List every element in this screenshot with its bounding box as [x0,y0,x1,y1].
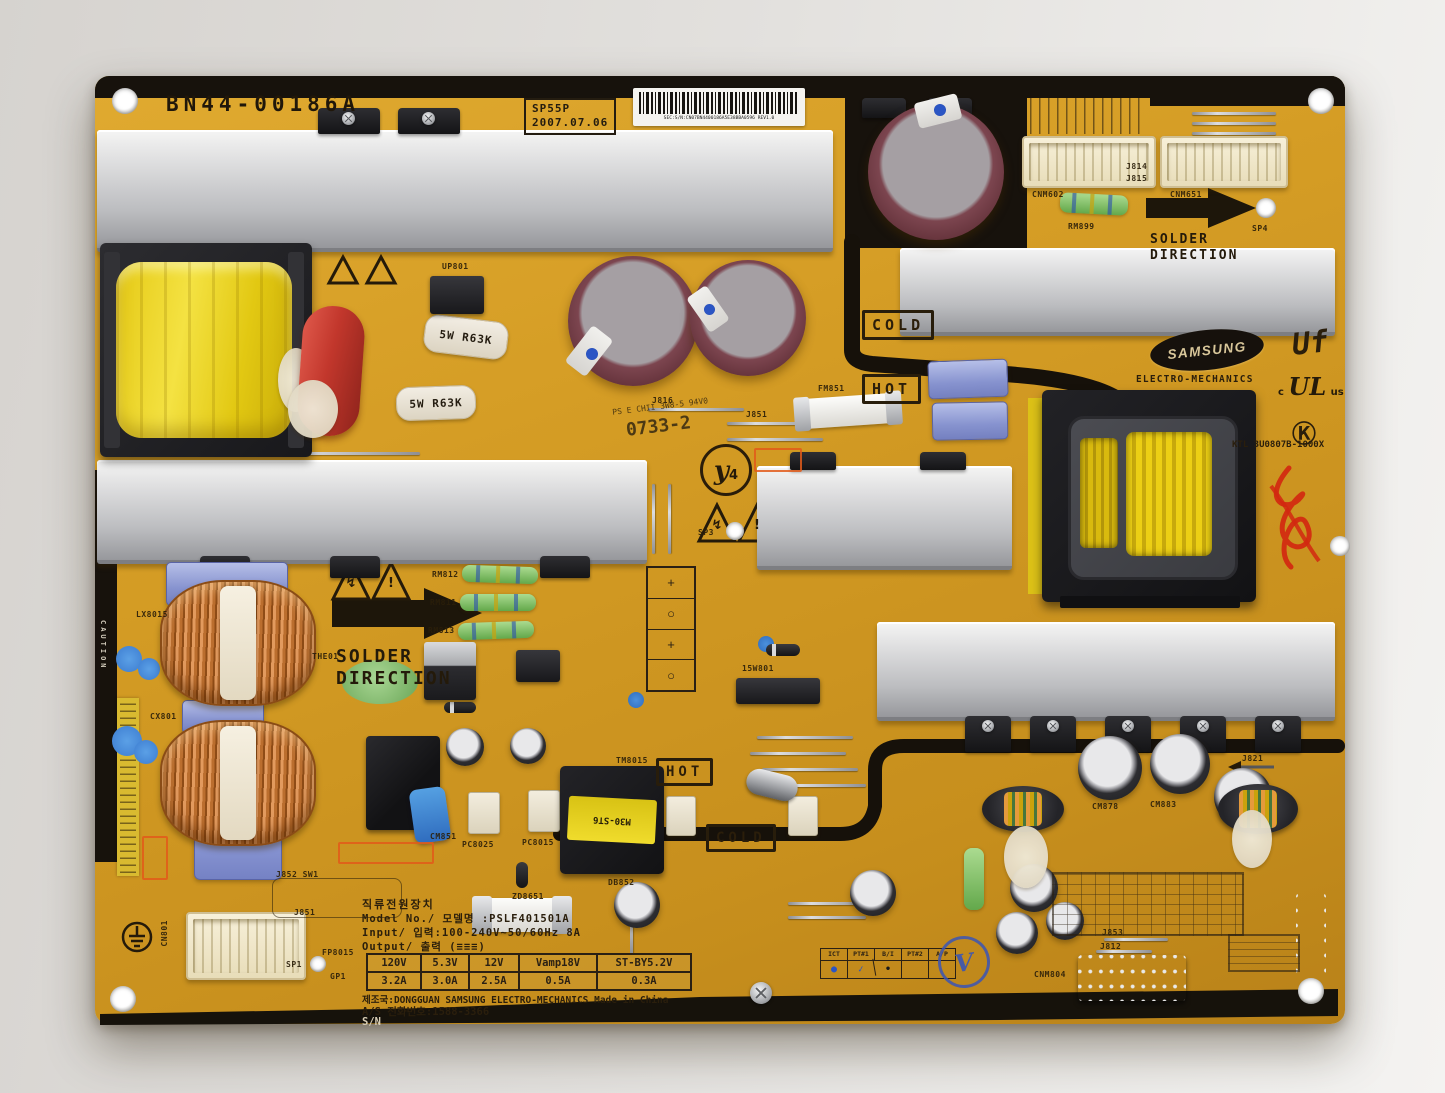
heatsink-mid-left [97,460,647,564]
solder-direction-right: SOLDER DIRECTION [1150,232,1238,263]
date-stamp-box: SP55P 2007.07.06 [524,98,616,135]
ref-cx801: CX801 [150,712,177,721]
electrolytic-capacitor-cm878 [1078,736,1142,800]
ref-cm878: CM878 [1092,802,1119,811]
spec-header: 5.3V [422,955,470,971]
mounting-hole-sp1 [310,956,326,972]
jumper-wire [757,736,853,739]
ref-sp4: SP4 [1252,224,1268,233]
ul-core: UL [1288,372,1326,401]
ref-cn801: CN801 [160,920,169,947]
qc-v-stamp-letter: V [953,946,975,977]
warning-bolt-glyph: ↯ [341,576,361,591]
qc-stamp: ✓ [847,959,877,980]
barcode-text: SEC:S/N:CN07BN4400186A5E38BBA0596 REV1.0 [633,116,805,121]
warning-excl-glyph: ! [381,576,401,591]
glue-blob [288,380,338,438]
ul-us: us [1331,387,1344,398]
transformer-pins [1060,596,1240,608]
glue-blob [1004,826,1048,888]
ref-cm851: CM851 [430,832,457,841]
electrolytic-capacitor [510,728,546,764]
electrolytic-capacitor [850,870,896,916]
jumper-wire [788,916,866,919]
orange-outline [754,448,802,472]
spec-value: 0.5A [520,973,598,989]
stamp-line2: 2007.07.06 [532,116,608,130]
ref-j853: J853 [1102,928,1123,937]
transistor-tab [330,556,380,578]
connector-cnm651 [1160,136,1288,188]
power-resistor-green [1060,192,1129,216]
qc-header: B/I [875,949,902,960]
electrolytic-capacitor [446,728,484,766]
spec-value: 3.0A [422,973,470,989]
mounting-hole [110,986,136,1012]
ref-j812: J812 [1100,942,1121,951]
heatsink-mid-center [757,466,1012,570]
spec-header-row: 120V 5.3V 12V Vamp18V ST-BY5.2V [368,955,690,971]
film-capacitor [932,401,1009,440]
tape-ridges [116,262,292,438]
heatsink-top-right [900,248,1335,336]
spec-serial-line: S/N [362,1016,381,1028]
toroid-choke [160,580,316,706]
spec-header: Vamp18V [520,955,598,971]
spec-value: 0.3A [598,973,690,989]
ref-j814: J814 [1126,162,1147,171]
samsung-logo-text: SAMSUNG [1167,338,1248,361]
ref-cm883: CM883 [1150,800,1177,809]
ref-cnm804: CNM804 [1034,970,1066,979]
transistor-tab [540,556,590,578]
solder-word1: SOLDER [1150,232,1238,248]
aux-mark: + [648,568,694,599]
transistor-screw [1047,720,1059,732]
part-number: BN44-00186A [166,92,360,116]
cold-label-top: COLD [862,310,934,340]
electrolytic-capacitor [614,882,660,928]
ref-j816: J816 [652,396,673,405]
stamp-line1: SP55P [532,102,608,116]
optocoupler [666,796,696,836]
output-toroid [982,786,1064,832]
orange-outline [142,836,168,880]
qc-header-row: ICT PT#1 B/I PT#2 A/P [821,949,955,960]
connector-5pin [1296,893,1326,978]
transistor-screw [1197,720,1209,732]
mounting-hole [1298,978,1324,1004]
optocoupler-pc8015 [528,790,560,832]
diode [444,702,476,713]
qc-header: ICT [821,949,848,960]
qc-stamp-row: ● ✓ • [821,960,955,978]
ref-rm899: RM899 [1068,222,1095,231]
ref-fp8015: FP8015 [322,948,354,957]
connector-pin-labels [1030,98,1142,134]
heatsink-top-left [97,130,833,252]
barcode-bars [639,92,799,114]
transistor-screw [982,720,994,732]
cap-blue-dot [586,348,598,360]
mounting-hole-sp3 [726,522,744,540]
jumper-wire-vertical [652,484,655,554]
power-resistor-green [460,594,536,611]
ref-j851-bottom: J851 [294,908,315,917]
y-mark: y [714,449,729,493]
ref-rm811: RM811 [430,598,457,607]
ref-cnm651: CNM651 [1170,190,1202,199]
jumper-wire [762,768,858,771]
ref-j851-top: J851 [746,410,767,419]
hot-label-top: HOT [862,374,921,404]
disc-capacitor [138,658,160,680]
heatsink-bottom-right [877,622,1335,721]
ref-rm813: RM813 [428,626,455,635]
aux-silk-table: + ○ + ○ [646,566,696,692]
qc-stamp: ● [821,961,848,978]
aux-mark: ○ [648,660,694,690]
toroid-choke [160,720,316,846]
ref-j821: J821 [1242,754,1263,763]
transformer-yellow-tape-coil [116,262,292,438]
spec-value-row: 3.2A 3.0A 2.5A 0.5A 0.3A [368,971,690,989]
transformer-yellow-label: M30-ST6 [567,796,657,845]
ref-up801: UP801 [442,262,469,271]
ceramic-resistor: 5W R63K [395,385,476,422]
mounting-screw [750,982,772,1004]
jumper-wire [727,438,823,441]
ul-mark: c UL us [1278,372,1344,401]
mounting-hole [112,88,138,114]
spec-header: 12V [470,955,520,971]
ktl-line: KTL 3U0807B-1000X [1232,440,1324,450]
spec-value: 2.5A [470,973,520,989]
standby-transformer-tm8015: M30-ST6 [560,766,664,874]
spec-header: ST-BY5.2V [598,955,690,971]
hot-label-bottom: HOT [656,758,713,786]
photo-scene: CAUTION [0,0,1445,1093]
mounting-hole [1308,88,1334,114]
mounting-hole [1330,536,1350,556]
ic-dip-15w801 [736,678,820,704]
connector-cnm804-header [1078,955,1186,1001]
film-capacitor [927,359,1008,400]
disc-capacitor [134,740,158,764]
jumper-wire-vertical [668,484,671,554]
ceramic-resistor-label: 5W R63K [409,396,463,411]
ic-up801 [430,276,484,314]
division-text: ELECTRO-MECHANICS [1136,374,1254,385]
cap-blue-dot [934,104,946,116]
solder-word2: DIRECTION [1150,248,1238,264]
ref-fm851: FM851 [818,384,845,393]
pinout-silk-table [1052,872,1244,936]
disc-capacitor [628,692,644,708]
qc-stamp [902,961,929,978]
ref-tm8015: TM8015 [616,756,648,765]
electrolytic-capacitor [996,912,1038,954]
y-mark-sub: 4 [729,447,738,505]
optocoupler [788,796,818,836]
lf-mark: Uf [1290,324,1330,363]
jumper-wire [1192,112,1276,115]
qc-stamp: • [875,961,902,978]
transistor-screw [1122,720,1134,732]
y4-safety-mark: y 4 [700,444,752,496]
warning-excl-glyph: ! [747,518,767,533]
spec-header: 120V [368,955,422,971]
orange-outline [338,842,434,864]
ref-cnm602: CNM602 [1032,190,1064,199]
cold-label-bottom: COLD [706,824,776,852]
qc-stamp-table: ICT PT#1 B/I PT#2 A/P ● ✓ • [820,948,956,979]
spec-title-kr: 직류전원장치 [362,896,435,912]
ref-pc8025: PC8025 [462,840,494,849]
solder-word2: DIRECTION [336,668,452,690]
ceramic-resistor-label: 5W R63K [439,327,494,346]
ref-j852-sw1: J852 SW1 [276,870,319,879]
barcode-sticker: SEC:S/N:CN07BN4400186A5E38BBA0596 REV1.0 [633,88,805,126]
mounting-hole-sp4 [1256,198,1276,218]
solder-direction-left: SOLDER DIRECTION [336,646,452,689]
ul-c: c [1278,387,1284,398]
cap-blue-dot [704,304,715,315]
aux-mark: + [648,630,694,661]
spec-model-line: Model No./ 모델명 :PSLF401501A [362,911,570,926]
qc-header: PT#2 [902,949,929,960]
label-silk-table [1228,934,1300,972]
diode [766,644,800,656]
transformer-winding-window [1126,432,1212,556]
electrolytic-capacitor-cm883 [1150,734,1210,794]
power-resistor-green [458,621,535,641]
transistor-screw [422,112,435,125]
jumper-wire [1192,122,1276,125]
jumper-wire [1104,938,1168,941]
power-resistor-green-vertical [964,848,984,910]
jumper-wire [750,752,846,755]
spec-value: 3.2A [368,973,422,989]
ref-the01: THE01 [312,652,339,661]
spec-service-line: A/S 전화번호:1588-3366 [362,1004,489,1019]
ref-gp1: GP1 [330,972,346,981]
glue-blob [1232,810,1272,868]
spec-output-line: Output/ 출력 (≡≡≡) [362,939,486,954]
solder-word1: SOLDER [336,646,452,668]
transistor-screw [1272,720,1284,732]
power-resistor-green [462,565,539,585]
spec-input-line: Input/ 입력:100-240V~50/60Hz 8A [362,925,581,940]
optocoupler-pc8025 [468,792,500,834]
ref-db852: DB852 [608,878,635,887]
ref-j815: J815 [1126,174,1147,183]
ic-small [516,650,560,682]
transistor-tab [920,452,966,470]
ref-sp1: SP1 [286,960,302,969]
bulk-capacitor [568,256,698,386]
jumper-wire [1192,132,1276,135]
aux-mark: ○ [648,599,694,630]
transformer-winding-window [1080,438,1118,548]
ref-rm812: RM812 [432,570,459,579]
ref-15w801: 15W801 [742,664,774,673]
ref-pc8015: PC8015 [522,838,554,847]
ref-sp3: SP3 [698,528,714,537]
ref-lx8015: LX8015 [136,610,168,619]
bulk-capacitor [690,260,806,376]
bulk-capacitor [868,104,1004,240]
ref-zd8651: ZD8651 [512,892,544,901]
zener-zd8651 [516,862,528,888]
output-spec-table: 120V 5.3V 12V Vamp18V ST-BY5.2V 3.2A 3.0… [366,953,692,991]
connector-cn801-ac-input [186,912,306,980]
